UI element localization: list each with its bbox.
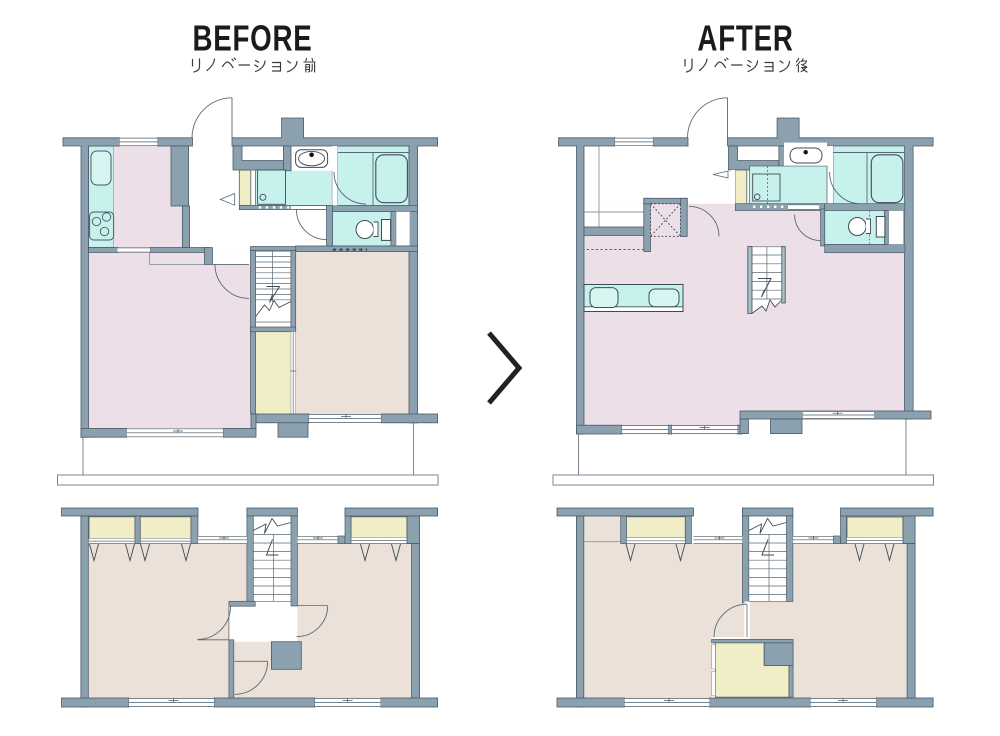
svg-text:BEFORE: BEFORE xyxy=(192,18,312,58)
svg-text:AFTER: AFTER xyxy=(697,18,793,58)
